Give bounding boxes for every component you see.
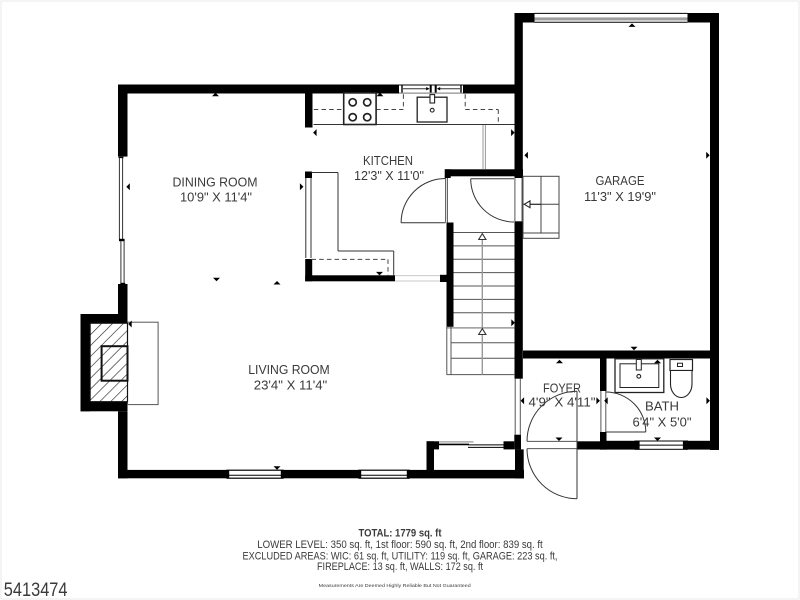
svg-text:LOWER LEVEL: 350 sq. ft, 1st f: LOWER LEVEL: 350 sq. ft, 1st floor: 590 … bbox=[257, 539, 543, 551]
svg-text:5413474: 5413474 bbox=[4, 579, 68, 600]
svg-text:12'3" X 11'0": 12'3" X 11'0" bbox=[354, 168, 424, 183]
svg-text:BATH: BATH bbox=[645, 399, 679, 414]
svg-text:KITCHEN: KITCHEN bbox=[363, 153, 413, 168]
svg-text:Measurements Are Deemed Highly: Measurements Are Deemed Highly Reliable … bbox=[319, 583, 471, 589]
svg-text:FOYER: FOYER bbox=[543, 380, 581, 395]
svg-text:11'3" X 19'9": 11'3" X 19'9" bbox=[584, 189, 656, 204]
svg-text:23'4" X 11'4": 23'4" X 11'4" bbox=[254, 378, 328, 393]
svg-text:GARAGE: GARAGE bbox=[596, 173, 645, 188]
svg-text:LIVING ROOM: LIVING ROOM bbox=[248, 362, 330, 377]
svg-text:4'9" X 4'11": 4'9" X 4'11" bbox=[529, 395, 596, 410]
svg-text:DINING ROOM: DINING ROOM bbox=[173, 174, 258, 189]
svg-text:TOTAL: 1779 sq. ft: TOTAL: 1779 sq. ft bbox=[359, 528, 442, 540]
svg-text:FIREPLACE: 13 sq. ft, WALLS: 1: FIREPLACE: 13 sq. ft, WALLS: 172 sq. ft bbox=[317, 561, 483, 573]
svg-text:6'4" X 5'0": 6'4" X 5'0" bbox=[633, 414, 692, 429]
svg-text:10'9" X 11'4": 10'9" X 11'4" bbox=[180, 190, 252, 205]
